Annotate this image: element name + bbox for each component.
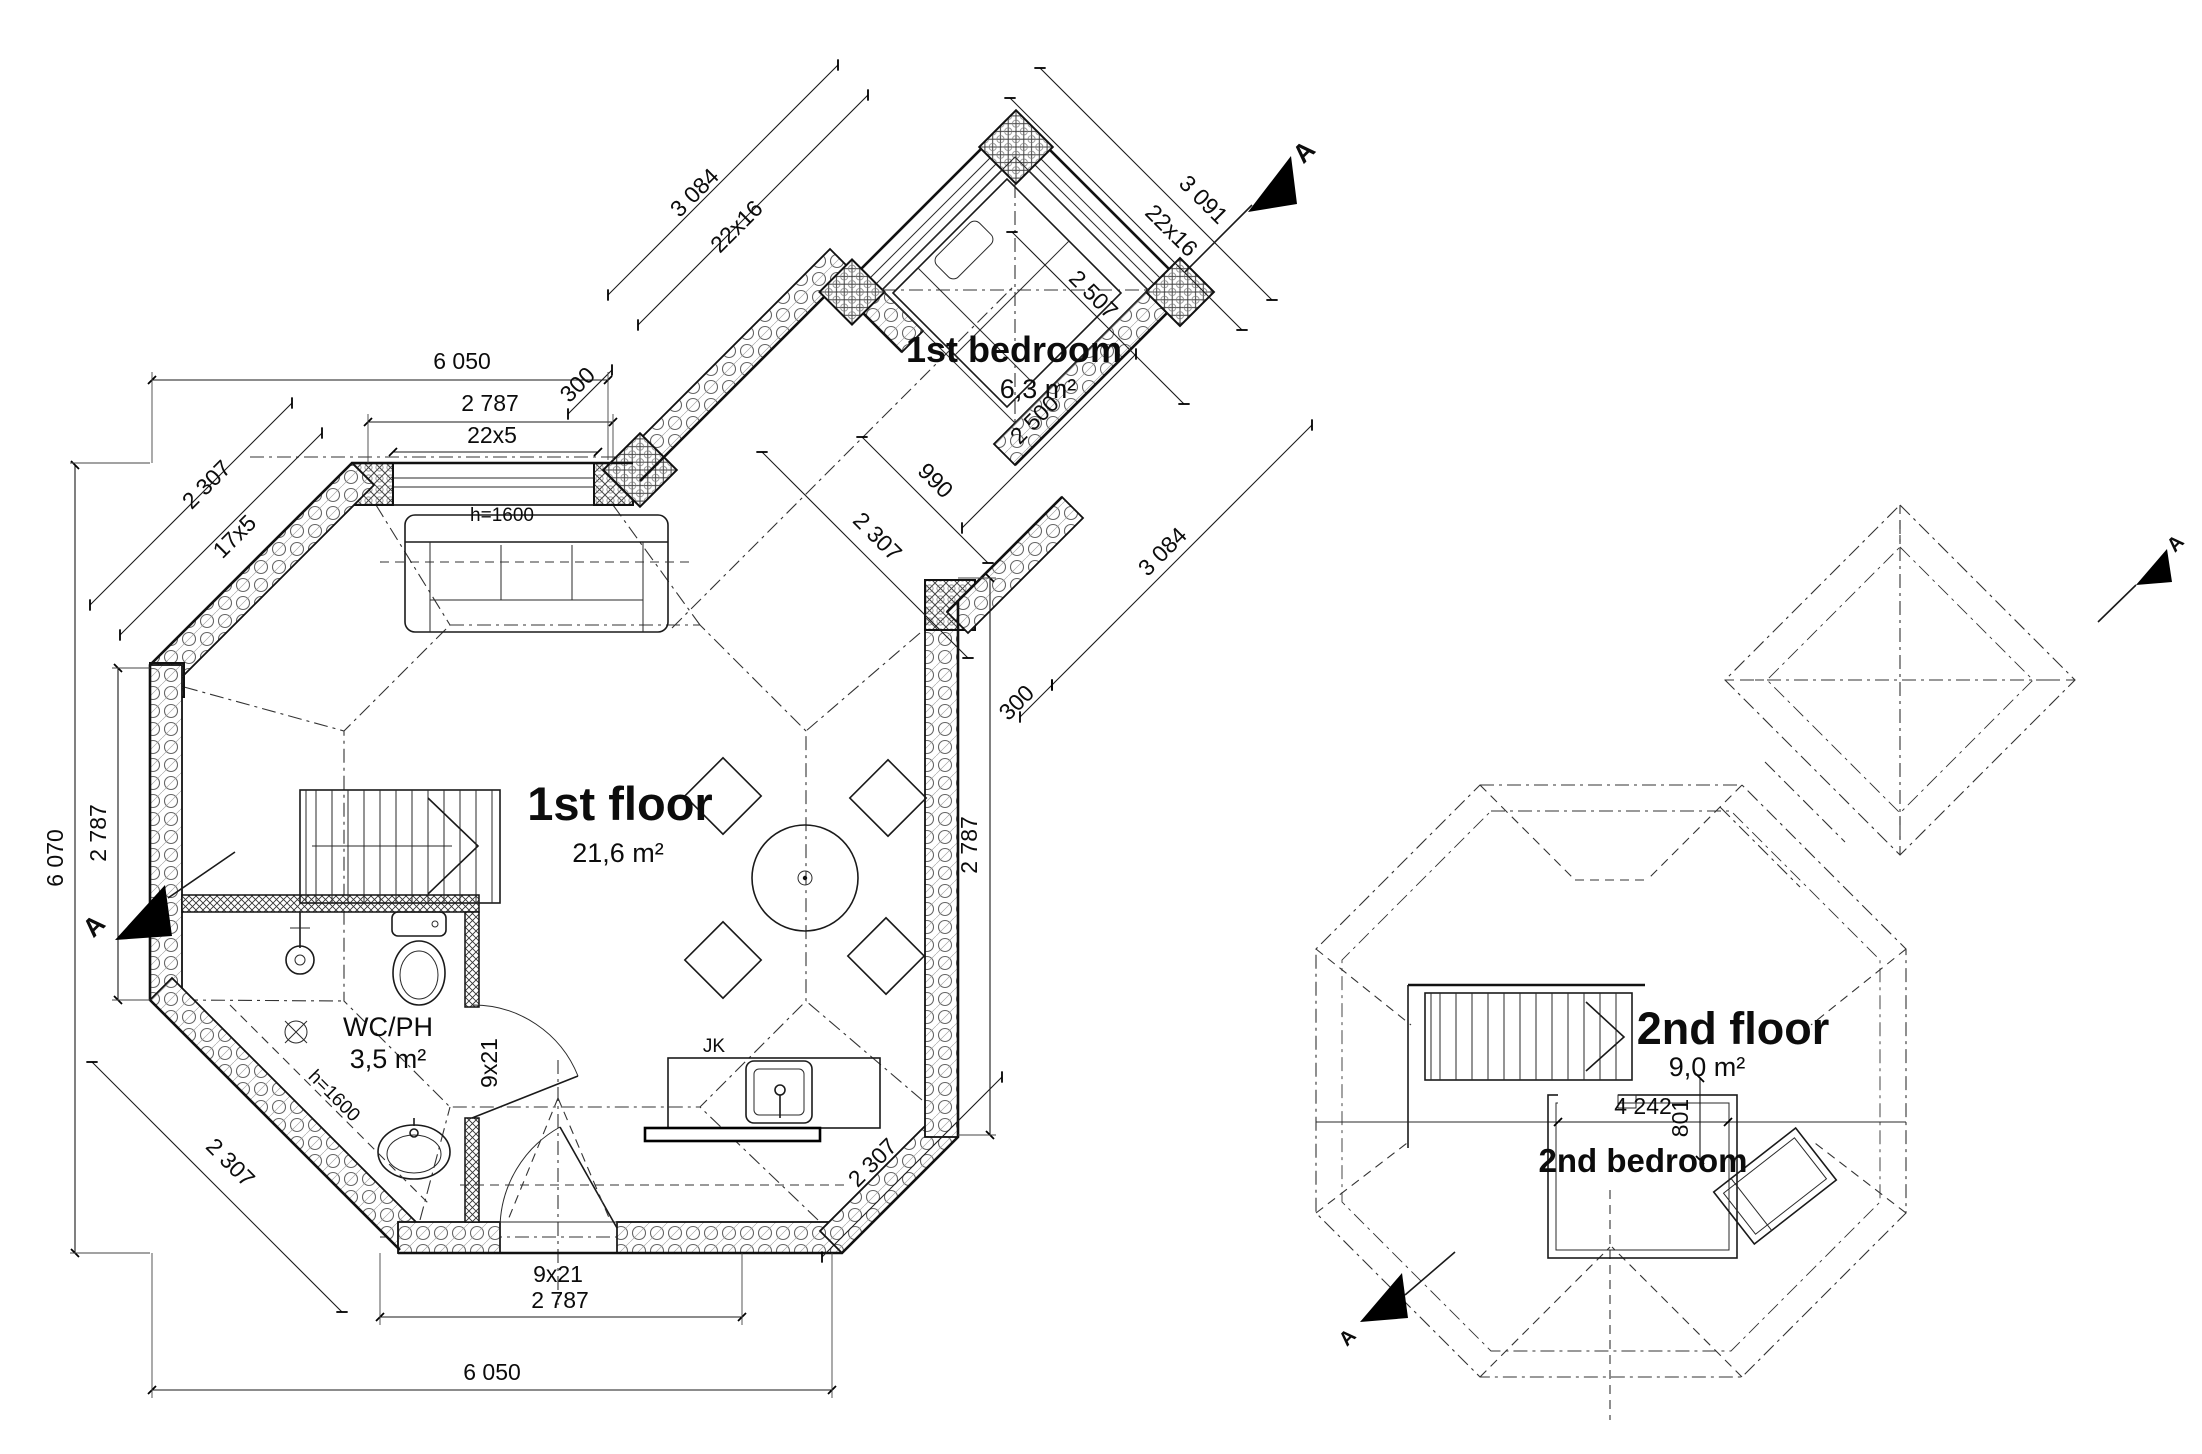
wall-right <box>925 600 958 1137</box>
dim-top-window: 22x5 <box>467 422 517 448</box>
stairs-first-floor <box>300 790 500 903</box>
entrance-door <box>460 1098 845 1228</box>
section-arrow-icon <box>2136 549 2172 585</box>
floor-plan-drawing: 6 050 2 787 22x5 300 6 070 2 787 2 307 1… <box>0 0 2202 1454</box>
wc-wall-vertical-lower <box>465 1118 479 1222</box>
bedroom-wing <box>819 110 1213 465</box>
floor-drain-icon <box>285 1021 307 1043</box>
section-label: A <box>76 908 111 943</box>
floor1-plan: 6 050 2 787 22x5 300 6 070 2 787 2 307 1… <box>42 65 1321 1398</box>
dim-right-wall: 300 <box>994 680 1040 726</box>
chair <box>685 922 761 998</box>
dim-upper-left-wall: 2 307 <box>177 455 236 514</box>
dim-upper-left-window: 17x5 <box>208 510 262 564</box>
dim-left-overall: 6 070 <box>42 829 68 887</box>
section-arrow-icon <box>115 885 172 940</box>
dim-wing-upper-left: 3 084 <box>665 163 724 222</box>
floor1-title: 1st floor <box>527 777 712 830</box>
floor1-dimensions <box>70 65 1312 1398</box>
sofa-height-note: h=1600 <box>470 505 534 526</box>
floor1-area: 21,6 m² <box>572 838 664 868</box>
kitchen-shelf <box>645 1128 820 1141</box>
bedroom1-title: 1st bedroom <box>906 329 1122 370</box>
dim-wing-upper-right: 3 091 <box>1174 170 1233 229</box>
entrance-door-swing <box>500 1127 560 1228</box>
stairs-direction-arrow <box>1586 1002 1624 1071</box>
dim-wing-lower-right: 3 084 <box>1133 522 1192 581</box>
dim-right-room: 2 787 <box>956 816 982 874</box>
floor-plan-sheet: 6 050 2 787 22x5 300 6 070 2 787 2 307 1… <box>0 0 2202 1454</box>
dim-corridor-opening: 990 <box>913 458 959 504</box>
dim-bottom-overall: 6 050 <box>463 1359 521 1385</box>
section-arrow-icon <box>1248 156 1297 212</box>
wall-bottom-right-part <box>617 1222 842 1253</box>
wall-corridor-lower <box>947 497 1083 633</box>
dim-wing-upper-right-window: 22x16 <box>1140 199 1203 262</box>
dim-room-width-2f: 4 242 <box>1614 1093 1672 1119</box>
dim-top-room-width: 2 787 <box>461 390 519 416</box>
entrance-door-size: 9x21 <box>533 1261 583 1287</box>
dim-bottom-room-width: 2 787 <box>531 1287 589 1313</box>
section-label: A <box>1335 1325 1361 1351</box>
bedroom1-area: 6,3 m² <box>1000 374 1077 404</box>
section-marker-a-bottom-left-2f: A <box>1335 1252 1455 1351</box>
wc-wall-vertical-upper <box>465 912 479 1007</box>
section-marker-a-top-right-2f: A <box>2098 531 2189 622</box>
floor2-title: 2nd floor <box>1637 1003 1829 1054</box>
sofa <box>380 515 690 632</box>
floor1-exterior-walls <box>150 249 1083 1253</box>
entrance-door-leaf <box>560 1127 617 1228</box>
wall-top <box>352 463 633 505</box>
toilet <box>392 912 446 1005</box>
stairs-second-floor <box>1425 993 1632 1080</box>
floor2-roof-outline <box>1316 505 2075 1420</box>
wc-height-note: h=1600 <box>304 1066 364 1126</box>
dim-bedroom-width: 2 507 <box>1064 265 1123 324</box>
floor2-plan: 2nd floor 9,0 m² 2nd bedroom 4 242 801 A… <box>1316 505 2189 1420</box>
chair <box>848 918 924 994</box>
dim-top-overall: 6 050 <box>433 348 491 374</box>
bedroom2-title: 2nd bedroom <box>1538 1142 1747 1179</box>
wc-door-size: 9x21 <box>476 1038 502 1088</box>
wall-left <box>150 665 182 1000</box>
dim-wing-upper-left-window: 22x16 <box>705 195 768 258</box>
dim-room-offset-2f: 801 <box>1667 1099 1693 1137</box>
bedroom2-door-opening <box>1558 1089 1618 1106</box>
dim-lower-left-wall: 2 307 <box>201 1133 260 1192</box>
kitchen-unit-label: JK <box>703 1036 726 1057</box>
chair <box>850 760 926 836</box>
kitchen-unit <box>645 1058 880 1141</box>
pillow <box>932 218 996 282</box>
wc-area: 3,5 m² <box>350 1044 427 1074</box>
dim-left-room: 2 787 <box>85 804 111 862</box>
wc-title: WC/PH <box>343 1012 433 1042</box>
shower-head <box>286 912 314 974</box>
dim-top-wall: 300 <box>555 362 601 408</box>
dim-corridor-wall: 2 307 <box>848 507 907 566</box>
wall-bottom-left-part <box>398 1222 500 1253</box>
floor2-area: 9,0 m² <box>1669 1052 1746 1082</box>
